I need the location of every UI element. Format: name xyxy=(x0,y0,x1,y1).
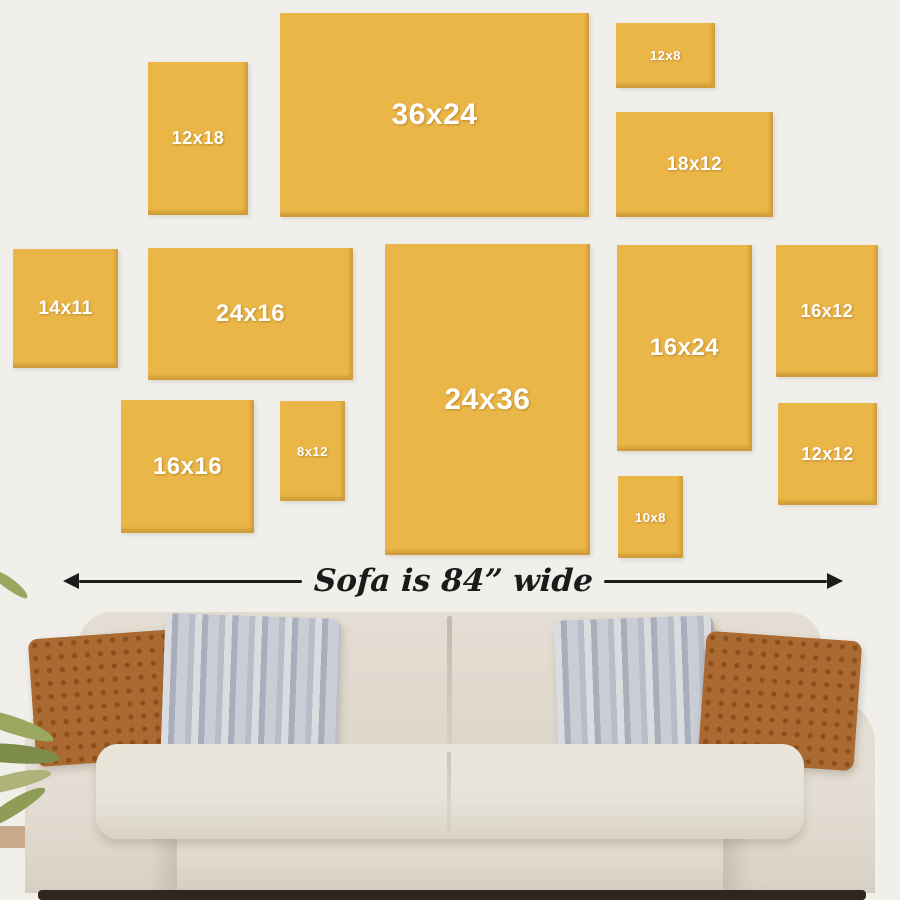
measure-line-left xyxy=(79,580,302,583)
frame-16x12: 16x12 xyxy=(776,245,878,377)
size-guide-image: 12x1836x2412x818x1214x1124x1624x3616x241… xyxy=(0,0,900,900)
frame-size-label: 16x12 xyxy=(801,301,854,322)
frame-size-label: 24x16 xyxy=(216,300,285,328)
frame-24x36: 24x36 xyxy=(385,244,590,555)
sofa-width-label: Sofa is 84” wide xyxy=(313,566,594,597)
arrow-right-icon xyxy=(827,573,843,589)
frame-size-label: 12x8 xyxy=(650,48,681,63)
frame-size-label: 8x12 xyxy=(297,444,328,459)
frame-size-label: 18x12 xyxy=(667,154,722,176)
frame-18x12: 18x12 xyxy=(616,112,773,217)
frame-36x24: 36x24 xyxy=(280,13,589,217)
frame-size-label: 36x24 xyxy=(392,98,478,132)
arrow-left-icon xyxy=(63,573,79,589)
measure-line-right xyxy=(604,580,827,583)
striped-pillow-left xyxy=(161,613,342,759)
frame-12x18: 12x18 xyxy=(148,62,248,215)
sofa-width-measure: Sofa is 84” wide xyxy=(63,564,843,598)
frame-24x16: 24x16 xyxy=(148,248,353,380)
frame-12x8: 12x8 xyxy=(616,23,715,88)
plant-leaf xyxy=(0,566,31,602)
frame-size-label: 16x16 xyxy=(153,453,222,481)
floor-shadow xyxy=(38,890,866,900)
sofa-back-seam xyxy=(447,616,452,746)
frame-10x8: 10x8 xyxy=(618,476,683,558)
frame-8x12: 8x12 xyxy=(280,401,345,501)
frame-size-label: 10x8 xyxy=(635,510,666,525)
frame-size-label: 12x18 xyxy=(172,128,225,149)
frame-14x11: 14x11 xyxy=(13,249,118,368)
frame-size-label: 16x24 xyxy=(650,334,719,362)
frame-16x24: 16x24 xyxy=(617,245,752,451)
frame-size-label: 24x36 xyxy=(445,383,531,417)
frame-16x16: 16x16 xyxy=(121,400,254,533)
frame-size-label: 12x12 xyxy=(801,444,854,465)
sofa-seat-seam xyxy=(447,752,451,834)
frame-12x12: 12x12 xyxy=(778,403,877,505)
frame-size-label: 14x11 xyxy=(38,298,92,320)
striped-pillow-right xyxy=(554,615,719,758)
